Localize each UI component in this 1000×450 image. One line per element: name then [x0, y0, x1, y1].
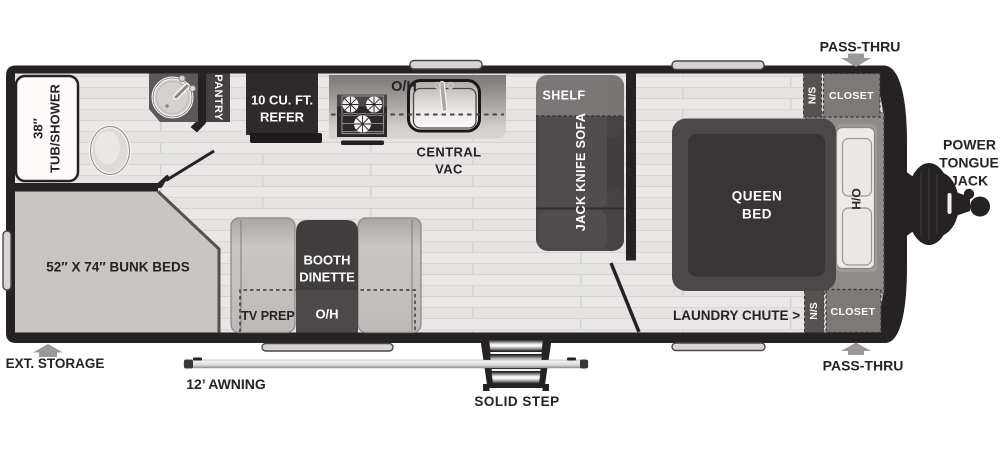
svg-text:SHELF: SHELF	[543, 89, 586, 103]
svg-text:12’ AWNING: 12’ AWNING	[186, 376, 266, 392]
svg-text:10 CU. FT.: 10 CU. FT.	[251, 93, 313, 108]
svg-text:PASS-THRU: PASS-THRU	[820, 39, 901, 55]
svg-text:TONGUE: TONGUE	[939, 155, 999, 171]
svg-text:EXT. STORAGE: EXT. STORAGE	[6, 356, 105, 371]
svg-text:SOLID STEP: SOLID STEP	[474, 394, 559, 409]
svg-text:N/S: N/S	[807, 87, 819, 105]
svg-text:TUB/SHOWER: TUB/SHOWER	[48, 83, 63, 172]
svg-text:LAUNDRY CHUTE >: LAUNDRY CHUTE >	[673, 308, 800, 323]
svg-text:JACK: JACK	[950, 173, 988, 189]
svg-text:N/S: N/S	[808, 302, 820, 320]
svg-text:52″ X 74″ BUNK BEDS: 52″ X 74″ BUNK BEDS	[46, 260, 189, 275]
svg-text:CENTRAL: CENTRAL	[417, 145, 482, 160]
svg-text:PASS-THRU: PASS-THRU	[823, 358, 904, 374]
svg-text:38″: 38″	[31, 118, 46, 139]
svg-text:DINETTE: DINETTE	[299, 270, 355, 285]
svg-text:JACK KNIFE SOFA: JACK KNIFE SOFA	[574, 113, 588, 232]
svg-text:CLOSET: CLOSET	[829, 90, 874, 102]
svg-text:POWER: POWER	[943, 137, 996, 153]
svg-text:REFER: REFER	[260, 110, 305, 125]
svg-text:O/H: O/H	[391, 79, 417, 95]
svg-text:H/O: H/O	[850, 188, 864, 209]
svg-text:PANTRY: PANTRY	[212, 74, 224, 121]
svg-text:CLOSET: CLOSET	[831, 306, 876, 318]
svg-text:BED: BED	[742, 207, 772, 222]
svg-text:BOOTH: BOOTH	[304, 253, 351, 268]
svg-text:QUEEN: QUEEN	[732, 189, 783, 204]
svg-text:VAC: VAC	[435, 162, 463, 177]
svg-text:TV PREP: TV PREP	[241, 309, 295, 323]
svg-text:O/H: O/H	[315, 307, 338, 322]
